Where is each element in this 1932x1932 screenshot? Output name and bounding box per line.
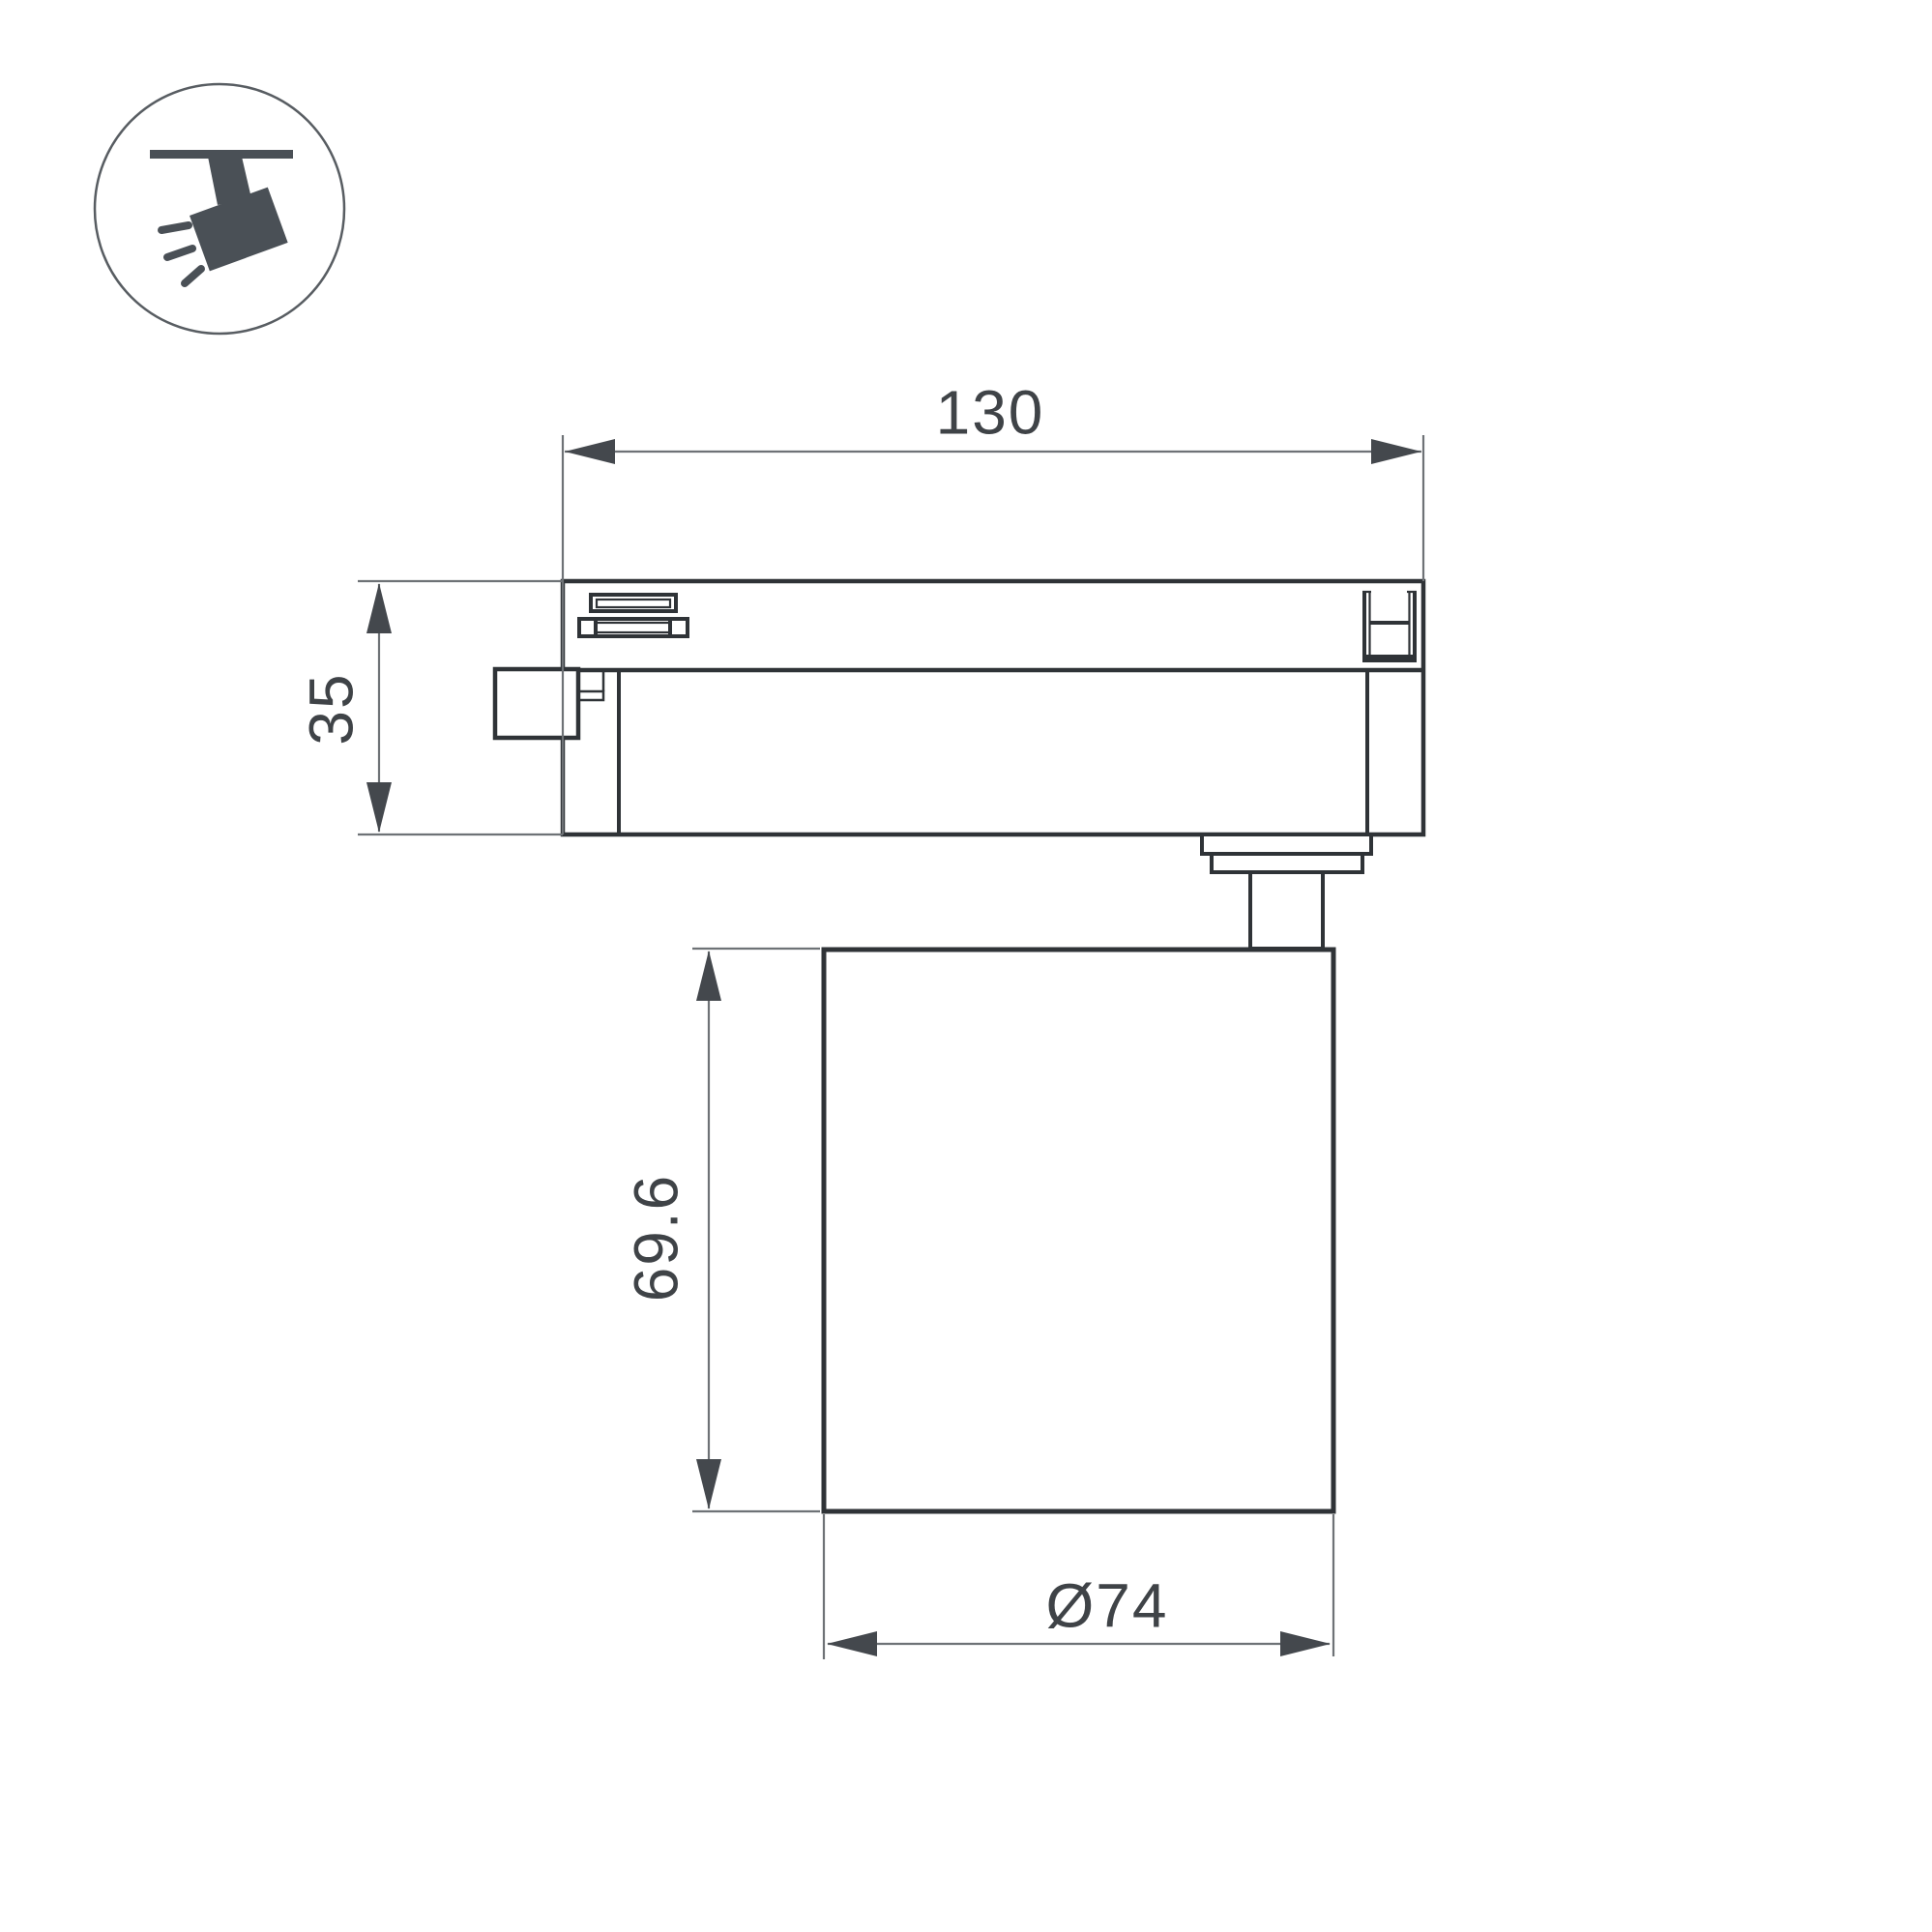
dim-body-height-label: 69.6 <box>621 1174 690 1303</box>
arrowhead <box>1280 1631 1331 1656</box>
pivot-connector <box>1202 834 1371 949</box>
dim-body-diameter: Ø74 <box>824 1514 1333 1659</box>
arrowhead <box>366 782 392 833</box>
track-adapter-view <box>495 581 1423 834</box>
arrowhead <box>1371 439 1421 464</box>
arrowhead <box>827 1631 877 1656</box>
dim-body-height: 69.6 <box>621 949 820 1511</box>
adapter-latch <box>579 691 603 700</box>
adapter-release-lever <box>495 669 578 738</box>
technical-drawing-page: 130 35 69.6 Ø74 <box>0 0 1932 1932</box>
pivot-plate-upper <box>1202 834 1371 854</box>
arrowhead <box>366 583 392 633</box>
lamp-body-outline <box>824 950 1333 1511</box>
adapter-outline <box>563 581 1423 834</box>
pivot-plate-lower <box>1212 854 1362 872</box>
dim-track-width-label: 130 <box>936 377 1045 447</box>
arrowhead <box>696 1459 721 1509</box>
pivot-stem <box>1250 872 1323 949</box>
arrowhead <box>565 439 615 464</box>
track-spotlight-icon <box>95 84 344 334</box>
dim-body-diameter-label: Ø74 <box>1046 1570 1169 1640</box>
dim-track-height-label: 35 <box>296 672 366 745</box>
arrowhead <box>696 951 721 1001</box>
technical-drawing-canvas: 130 35 69.6 Ø74 <box>0 0 1932 1932</box>
